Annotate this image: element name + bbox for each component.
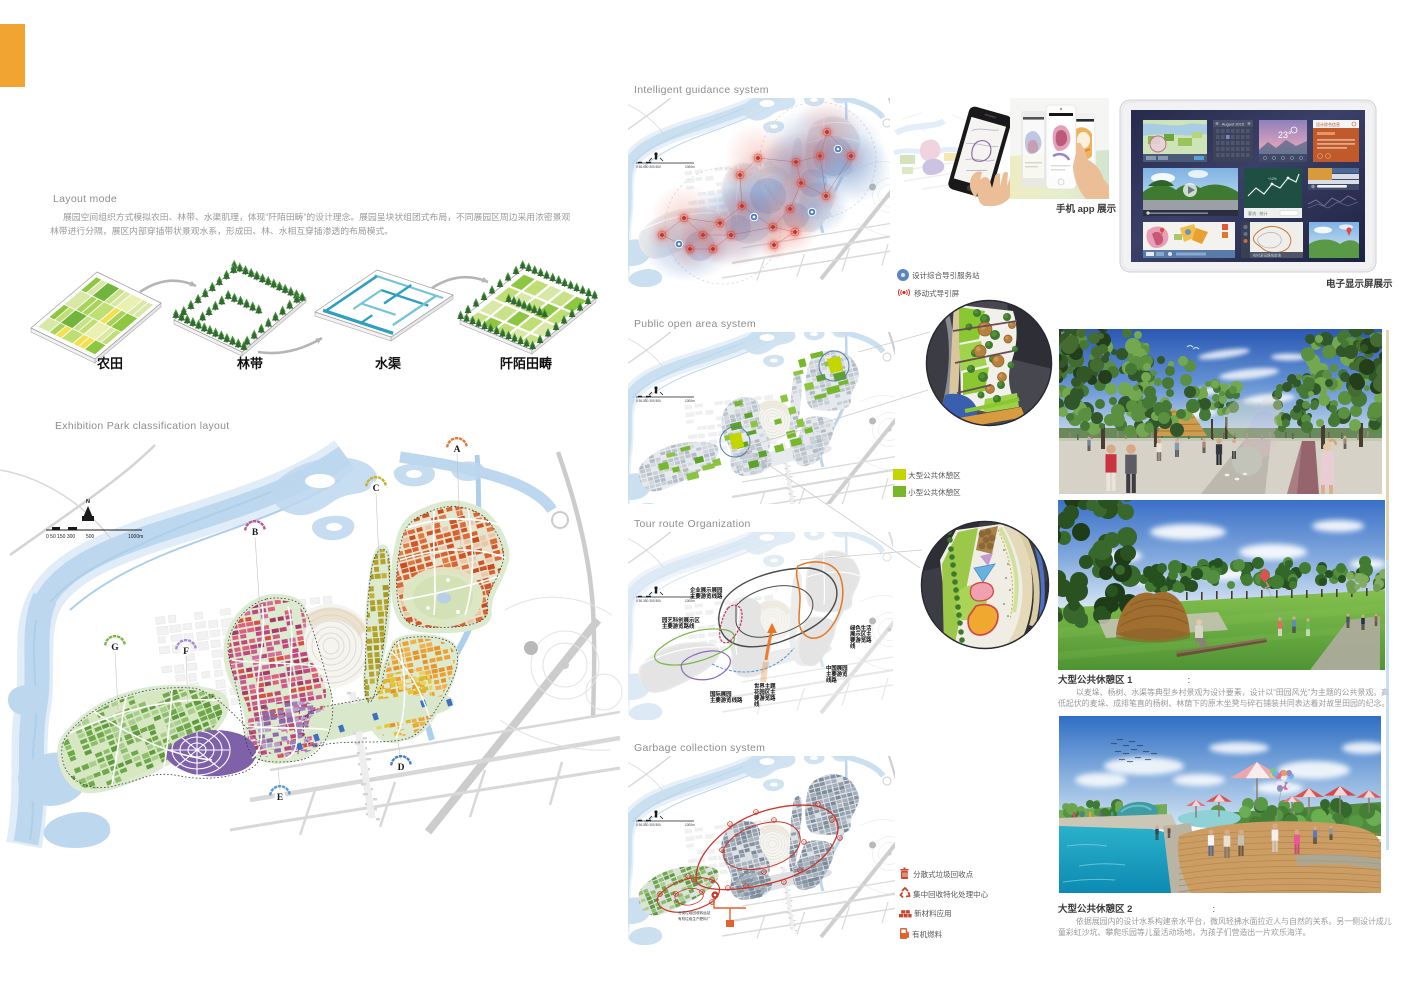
svg-text:设计综合信息: 设计综合信息 [1316,121,1340,127]
svg-text:23°: 23° [1278,130,1292,140]
svg-text:1000m: 1000m [128,534,143,540]
svg-text:13: 13 [720,848,724,852]
svg-text:500: 500 [86,534,95,540]
svg-text:13: 13 [838,836,842,840]
svg-text:13: 13 [798,868,802,872]
svg-text:实时游览路线查询: 实时游览路线查询 [1253,253,1281,258]
svg-text:1000m: 1000m [685,823,695,827]
svg-text:+12%: +12% [1268,177,1277,181]
svg-text:13: 13 [816,802,820,806]
svg-text:分类垃圾回收转运站: 分类垃圾回收转运站 [678,910,711,915]
svg-text:C: C [373,484,380,494]
svg-text:13: 13 [830,818,834,822]
svg-text:B: B [252,528,259,538]
svg-text:13: 13 [754,810,758,814]
svg-text:E: E [277,793,283,803]
svg-text:有机垃圾生产肥料厂: 有机垃圾生产肥料厂 [678,916,711,921]
svg-text:13: 13 [658,892,662,896]
svg-text:A: A [454,445,461,455]
svg-text:13: 13 [772,818,776,822]
svg-text:N: N [86,499,90,505]
svg-text:13: 13 [782,880,786,884]
svg-text:0 50 150 300: 0 50 150 300 [46,534,75,540]
svg-text:客流 · 统计: 客流 · 统计 [1248,210,1268,216]
svg-text:G: G [111,643,119,653]
svg-text:农田: 农田 [96,356,123,371]
svg-text:林带: 林带 [237,356,263,371]
svg-text:13: 13 [744,884,748,888]
svg-text:August 2015: August 2015 [1222,122,1245,127]
svg-text:13: 13 [710,878,714,882]
svg-text:13: 13 [692,878,696,882]
svg-text:13: 13 [674,892,678,896]
svg-text:13: 13 [728,822,732,826]
svg-text:13: 13 [700,890,704,894]
svg-text:13: 13 [726,886,730,890]
svg-text:阡陌田畴: 阡陌田畴 [500,356,552,371]
svg-text:F: F [183,647,189,657]
svg-text:水渠: 水渠 [375,356,402,371]
svg-text:13: 13 [686,874,690,878]
svg-text:13: 13 [802,840,806,844]
svg-text:D: D [398,763,405,773]
svg-text:13: 13 [762,870,766,874]
svg-text:0 50 150 300 500: 0 50 150 300 500 [636,823,661,827]
